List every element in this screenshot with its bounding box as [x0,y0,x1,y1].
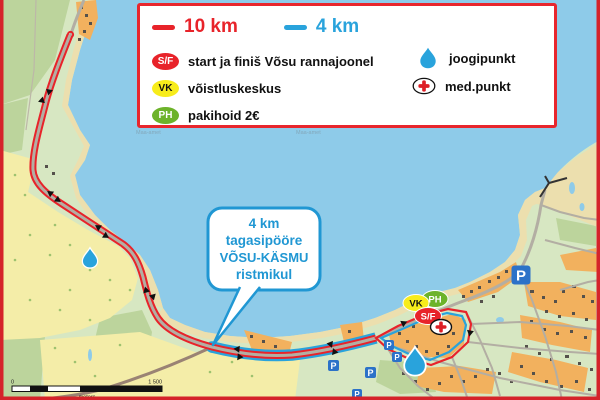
route-4km-label: 4 km [316,16,359,38]
svg-text:Maa-amet: Maa-amet [296,130,321,136]
svg-text:P: P [367,368,373,378]
svg-text:PH: PH [428,295,441,306]
parking-icon: P [384,340,394,350]
callout-line: 4 km [249,216,280,231]
race-map-screen: P P P P P P PH VK S/F [0,0,600,400]
water-drop-icon [416,46,440,70]
med-cross-icon [412,74,436,98]
ph-badge: PH [152,107,179,124]
callout-line: ristmikul [236,267,292,282]
svg-text:P: P [516,268,526,285]
sf-badge: S/F [152,53,179,70]
scale-max-label: 1 500 [148,380,162,386]
blue-line-swatch [284,25,307,30]
svg-text:S/F: S/F [421,312,436,323]
legend-route-10km: 10 km [152,16,238,38]
legend-km-row: 10 km 4 km [152,16,359,38]
callout-line: VÕSU-KÄSMU [220,250,309,265]
legend-item-label: med.punkt [445,79,511,94]
red-line-swatch [152,25,175,30]
legend: 10 km 4 km S/F start ja finiš Võsu ranna… [137,3,557,128]
vk-badge: VK [152,80,179,97]
legend-item-label: pakihoid 2€ [188,108,260,123]
callout-line: tagasipööre [226,233,303,248]
legend-item-label: võistluskeskus [188,81,281,96]
legend-item-label: joogipunkt [449,51,515,66]
legend-item-competition-center: VK võistluskeskus [152,78,281,98]
parking-icon: P [512,266,531,285]
scale-zero-label: 0 [11,380,14,386]
route-10km-label: 10 km [184,16,238,38]
svg-text:P: P [386,341,392,350]
svg-text:VK: VK [409,299,422,310]
legend-item-bag-storage: PH pakihoid 2€ [152,105,260,125]
parking-icon: P [365,367,376,378]
parking-icon: P [392,352,402,362]
legend-item-label: start ja finiš Võsu rannajoonel [188,54,374,69]
svg-text:Maa-amet: Maa-amet [136,130,161,136]
legend-item-start-finish: S/F start ja finiš Võsu rannajoonel [152,51,374,71]
legend-item-med-point: med.punkt [412,76,511,96]
svg-text:P: P [394,353,400,362]
legend-route-4km: 4 km [284,16,359,38]
med-cross-icon [431,320,452,335]
parking-icon: P [328,360,339,371]
svg-text:P: P [330,361,336,371]
legend-item-drink-point: joogipunkt [416,48,515,68]
